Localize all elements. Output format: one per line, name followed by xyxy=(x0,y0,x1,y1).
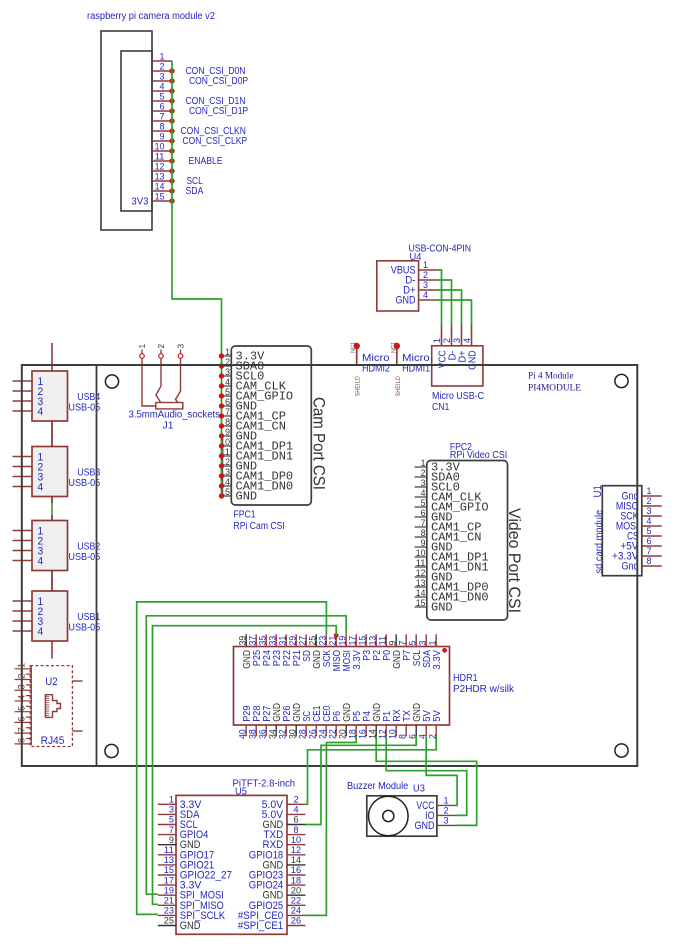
svg-text:2: 2 xyxy=(156,344,166,349)
svg-text:17: 17 xyxy=(348,636,358,646)
svg-text:ENABLE: ENABLE xyxy=(189,156,223,167)
svg-text:32: 32 xyxy=(278,729,288,739)
svg-text:3: 3 xyxy=(160,72,165,82)
svg-text:3: 3 xyxy=(176,344,186,349)
svg-text:GND: GND xyxy=(396,295,416,307)
svg-text:7: 7 xyxy=(398,641,408,646)
svg-text:5V: 5V xyxy=(432,710,443,722)
svg-text:11: 11 xyxy=(378,636,388,646)
svg-text:GND: GND xyxy=(236,490,258,504)
svg-text:14: 14 xyxy=(416,588,426,598)
svg-text:PI4MODULE: PI4MODULE xyxy=(528,382,581,393)
svg-text:4: 4 xyxy=(160,82,165,92)
svg-text:5: 5 xyxy=(647,526,652,536)
svg-text:1: 1 xyxy=(428,641,438,646)
svg-text:6: 6 xyxy=(647,536,652,546)
svg-text:9: 9 xyxy=(160,132,165,142)
svg-text:29: 29 xyxy=(288,636,298,646)
svg-text:8: 8 xyxy=(398,734,408,739)
svg-text:13: 13 xyxy=(368,636,378,646)
svg-text:6: 6 xyxy=(225,397,230,407)
svg-text:8: 8 xyxy=(160,122,165,132)
svg-text:12: 12 xyxy=(416,568,426,578)
svg-text:9: 9 xyxy=(421,538,426,548)
svg-text:Cam Port CSI: Cam Port CSI xyxy=(310,397,329,490)
svg-text:3: 3 xyxy=(423,280,428,290)
svg-text:4: 4 xyxy=(647,516,652,526)
svg-text:2: 2 xyxy=(442,338,452,343)
svg-text:25: 25 xyxy=(308,636,318,646)
svg-text:Buzzer Module: Buzzer Module xyxy=(347,781,409,792)
svg-text:3V3: 3V3 xyxy=(131,197,149,208)
svg-text:13: 13 xyxy=(416,578,426,588)
svg-text:5: 5 xyxy=(408,641,418,646)
svg-text:7: 7 xyxy=(647,546,652,556)
svg-text:12: 12 xyxy=(155,162,165,172)
svg-text:3: 3 xyxy=(225,367,230,377)
svg-text:U2: U2 xyxy=(45,676,57,688)
svg-text:Pi 4 Module: Pi 4 Module xyxy=(528,370,574,381)
svg-text:22: 22 xyxy=(328,729,338,739)
svg-text:4: 4 xyxy=(38,406,44,418)
svg-text:CN1: CN1 xyxy=(432,402,450,413)
svg-text:9: 9 xyxy=(225,427,230,437)
svg-text:4: 4 xyxy=(38,626,44,638)
svg-text:sd card module: sd card module xyxy=(594,509,605,573)
svg-text:10: 10 xyxy=(388,729,398,739)
svg-text:1: 1 xyxy=(647,486,652,496)
svg-text:Video Port CSI: Video Port CSI xyxy=(505,508,524,613)
svg-text:16: 16 xyxy=(358,729,368,739)
svg-text:3: 3 xyxy=(421,478,426,488)
svg-text:7: 7 xyxy=(421,518,426,528)
svg-text:GND: GND xyxy=(468,351,479,370)
svg-text:4: 4 xyxy=(423,290,428,300)
svg-text:15: 15 xyxy=(155,192,165,202)
svg-text:38: 38 xyxy=(248,729,258,739)
svg-text:4: 4 xyxy=(225,377,230,387)
svg-text:RJ45: RJ45 xyxy=(41,735,65,747)
svg-text:2: 2 xyxy=(423,270,428,280)
svg-text:J1: J1 xyxy=(163,421,174,432)
svg-text:5: 5 xyxy=(225,387,230,397)
svg-text:2: 2 xyxy=(421,468,426,478)
svg-text:RPi Video CSI: RPi Video CSI xyxy=(450,450,507,461)
svg-text:CON_CSI_D0P: CON_CSI_D0P xyxy=(189,76,248,87)
svg-text:4: 4 xyxy=(462,338,472,343)
svg-text:11: 11 xyxy=(416,558,426,568)
svg-text:NC1: NC1 xyxy=(350,342,357,353)
svg-text:35: 35 xyxy=(258,636,268,646)
svg-text:10: 10 xyxy=(416,548,426,558)
svg-text:1: 1 xyxy=(432,338,442,343)
svg-text:1: 1 xyxy=(137,344,147,349)
svg-text:23: 23 xyxy=(318,636,328,646)
svg-text:7: 7 xyxy=(225,407,230,417)
svg-text:5: 5 xyxy=(160,92,165,102)
svg-text:3.3V: 3.3V xyxy=(432,650,443,670)
svg-text:FPC1: FPC1 xyxy=(234,510,256,521)
svg-text:SHEILD: SHEILD xyxy=(395,376,402,397)
svg-text:15: 15 xyxy=(416,598,426,608)
svg-text:Micro USB-C: Micro USB-C xyxy=(432,391,484,402)
svg-text:CON_CSI_D1P: CON_CSI_D1P xyxy=(189,106,248,117)
svg-text:28: 28 xyxy=(298,729,308,739)
svg-text:2: 2 xyxy=(160,62,165,72)
svg-text:1: 1 xyxy=(160,52,165,62)
svg-text:RPi Cam CSI: RPi Cam CSI xyxy=(234,521,285,532)
svg-text:Micro: Micro xyxy=(362,353,390,364)
svg-text:10: 10 xyxy=(155,142,165,152)
svg-text:4: 4 xyxy=(38,481,44,493)
svg-text:6: 6 xyxy=(160,102,165,112)
svg-text:2: 2 xyxy=(647,496,652,506)
svg-text:33: 33 xyxy=(268,636,278,646)
svg-text:3: 3 xyxy=(443,816,448,827)
svg-text:4: 4 xyxy=(38,555,44,567)
svg-text:39: 39 xyxy=(238,636,248,646)
svg-text:SHEILD: SHEILD xyxy=(355,376,362,397)
svg-text:CON_CSI_CLKP: CON_CSI_CLKP xyxy=(183,136,248,147)
svg-text:8: 8 xyxy=(421,528,426,538)
svg-text:#SPI_CE1: #SPI_CE1 xyxy=(238,920,283,932)
svg-text:1: 1 xyxy=(423,260,428,270)
svg-text:19: 19 xyxy=(338,636,348,646)
svg-text:Micro: Micro xyxy=(402,353,430,364)
svg-text:P2HDR w/silk: P2HDR w/silk xyxy=(453,684,515,695)
svg-text:U1: U1 xyxy=(592,485,604,497)
svg-text:U3: U3 xyxy=(413,784,425,795)
svg-text:37: 37 xyxy=(248,636,258,646)
svg-text:NC1: NC1 xyxy=(390,342,397,353)
svg-text:raspberry pi camera module v2: raspberry pi camera module v2 xyxy=(87,11,215,22)
svg-text:GND: GND xyxy=(180,920,201,932)
svg-text:SDA: SDA xyxy=(186,186,204,197)
svg-text:40: 40 xyxy=(238,729,248,739)
svg-text:7: 7 xyxy=(160,112,165,122)
svg-text:3: 3 xyxy=(647,506,652,516)
svg-text:6: 6 xyxy=(421,508,426,518)
svg-text:9: 9 xyxy=(388,641,398,646)
svg-text:3.5mmAudio_sockets: 3.5mmAudio_sockets xyxy=(129,410,221,421)
svg-text:34: 34 xyxy=(268,729,278,739)
svg-text:30: 30 xyxy=(288,729,298,739)
svg-text:26: 26 xyxy=(308,729,318,739)
svg-text:25: 25 xyxy=(164,916,174,927)
svg-text:4: 4 xyxy=(421,488,426,498)
svg-text:31: 31 xyxy=(278,636,288,646)
svg-text:1: 1 xyxy=(421,458,426,468)
svg-text:3: 3 xyxy=(452,338,462,343)
svg-text:GND: GND xyxy=(431,601,453,615)
svg-text:8: 8 xyxy=(225,417,230,427)
svg-text:5: 5 xyxy=(421,498,426,508)
svg-text:20: 20 xyxy=(338,729,348,739)
svg-text:24: 24 xyxy=(318,729,328,739)
svg-text:1: 1 xyxy=(225,347,230,357)
svg-text:15: 15 xyxy=(358,636,368,646)
svg-text:Gnd: Gnd xyxy=(622,561,639,573)
svg-text:14: 14 xyxy=(155,182,165,192)
svg-text:27: 27 xyxy=(298,636,308,646)
svg-text:GND: GND xyxy=(415,820,435,832)
svg-text:26: 26 xyxy=(291,916,301,927)
svg-text:11: 11 xyxy=(155,152,165,162)
svg-text:36: 36 xyxy=(258,729,268,739)
svg-text:3: 3 xyxy=(418,641,428,646)
svg-text:13: 13 xyxy=(155,172,165,182)
svg-text:8: 8 xyxy=(647,556,652,566)
svg-text:HDR1: HDR1 xyxy=(453,673,478,684)
